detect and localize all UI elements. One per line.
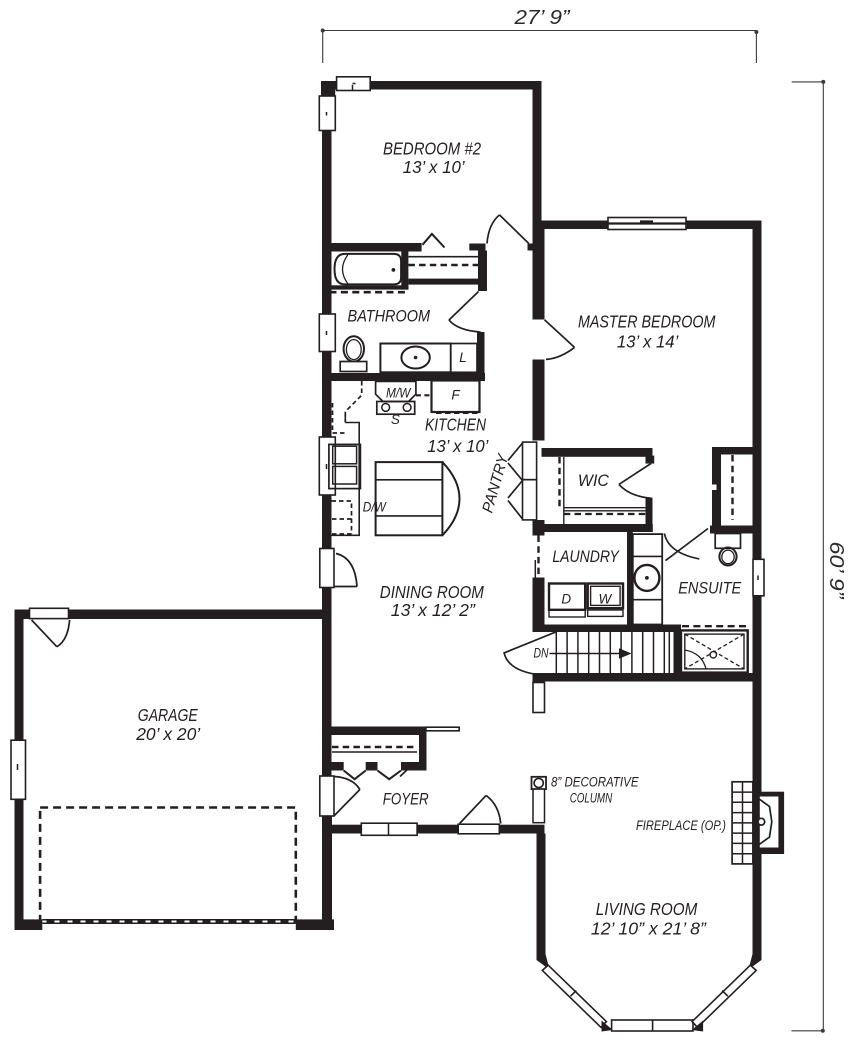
svg-text:BATHROOM: BATHROOM (348, 308, 431, 326)
svg-text:M/W: M/W (386, 386, 412, 401)
svg-text:LIVING ROOM: LIVING ROOM (596, 899, 698, 919)
svg-text:L: L (459, 350, 467, 365)
svg-text:S: S (391, 412, 400, 427)
svg-text:WIC: WIC (578, 471, 610, 490)
svg-text:FIREPLACE (OP.): FIREPLACE (OP.) (636, 818, 726, 833)
svg-text:DINING ROOM: DINING ROOM (380, 582, 484, 602)
svg-text:LAUNDRY: LAUNDRY (552, 547, 620, 566)
svg-text:FOYER: FOYER (383, 789, 429, 808)
svg-text:MASTER BEDROOM: MASTER BEDROOM (578, 312, 716, 332)
svg-text:D/W: D/W (363, 499, 387, 514)
svg-text:13’ x 10’: 13’ x 10’ (403, 157, 466, 177)
svg-text:60’ 9”: 60’ 9” (825, 542, 847, 601)
svg-text:BEDROOM #2: BEDROOM #2 (383, 139, 481, 159)
svg-text:13’ x 14’: 13’ x 14’ (617, 332, 680, 352)
svg-text:ENSUITE: ENSUITE (678, 579, 742, 598)
svg-text:DN: DN (534, 645, 549, 660)
svg-text:GARAGE: GARAGE (138, 705, 198, 725)
svg-text:D: D (561, 591, 571, 606)
svg-text:8” DECORATIVE: 8” DECORATIVE (551, 775, 639, 790)
svg-text:20’ x 20’: 20’ x 20’ (135, 724, 201, 744)
svg-text:F: F (451, 388, 460, 403)
svg-text:13’ x 10’: 13’ x 10’ (427, 436, 489, 456)
svg-text:W: W (599, 591, 613, 606)
svg-text:12’ 10” x 21’ 8”: 12’ 10” x 21’ 8” (591, 919, 707, 939)
svg-text:COLUMN: COLUMN (570, 791, 613, 806)
svg-text:KITCHEN: KITCHEN (425, 415, 486, 435)
svg-text:13’ x 12’ 2”: 13’ x 12’ 2” (391, 600, 476, 620)
svg-text:27’ 9”: 27’ 9” (513, 7, 571, 29)
